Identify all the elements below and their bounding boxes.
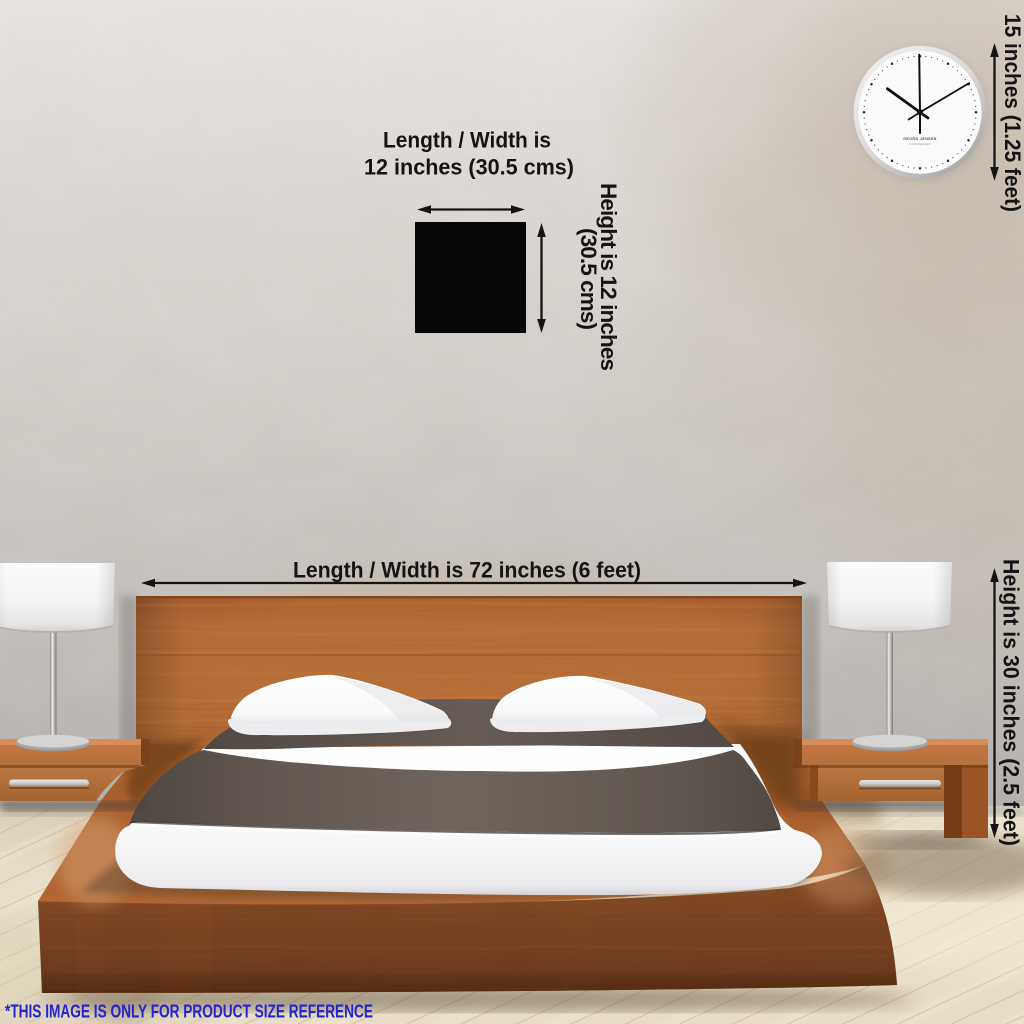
svg-text:Length / Width is 72 inches (6: Length / Width is 72 inches (6 feet) [293, 558, 641, 583]
svg-text:*THIS IMAGE IS ONLY FOR PRODUC: *THIS IMAGE IS ONLY FOR PRODUCT SIZE REF… [5, 1001, 373, 1022]
svg-text:GEORG JENSEN: GEORG JENSEN [903, 137, 937, 141]
svg-text:COPENHAGEN: COPENHAGEN [909, 142, 930, 146]
svg-text:Height is 30 inches (2.5 feet): Height is 30 inches (2.5 feet) [999, 559, 1024, 846]
svg-text:Length / Width is: Length / Width is [383, 128, 551, 153]
svg-text:12 inches (30.5 cms): 12 inches (30.5 cms) [364, 155, 574, 180]
svg-text:15 inches (1.25 feet): 15 inches (1.25 feet) [1000, 14, 1024, 212]
